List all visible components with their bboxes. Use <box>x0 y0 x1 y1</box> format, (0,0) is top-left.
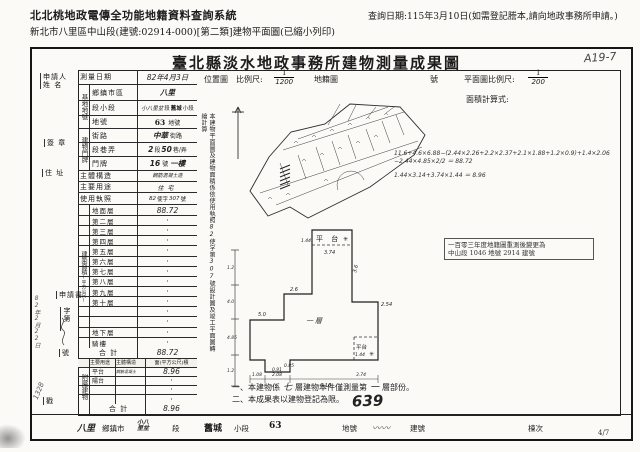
side-note-vertical: 本建物平面圖及建物面積係依使用執照82使字第307號設計圖及竣工平面圖轉繪計算 <box>199 113 215 357</box>
street-label: 街路 <box>90 129 138 142</box>
area-row-label <box>90 317 138 326</box>
table-row-area-5: 第五層· <box>78 246 197 256</box>
section-value: 小八里坌段舊城小段 <box>138 101 197 115</box>
row-street: 街路 中華街路 <box>78 129 197 143</box>
query-date: 查詢日期:115年3月10日(如需登記謄本,請向地政事務所申請。) <box>368 9 618 22</box>
left-upper-dim: 2.6 <box>290 287 298 293</box>
scale-label: 比例尺: <box>236 74 263 85</box>
area-row-label <box>90 307 138 316</box>
area-row-label: 第二層 <box>90 216 138 225</box>
table-row-area-14: 騎樓· <box>78 338 197 348</box>
area-row-label: 第九層 <box>90 287 138 296</box>
top-platform-dim: 1.44 <box>301 238 311 244</box>
area-row-value: · <box>138 297 197 306</box>
lane-hw1: 2 <box>148 145 153 154</box>
bottom-bar-label-6: 棟次 <box>528 423 543 434</box>
lane-print2: 巷/弄 <box>173 145 187 154</box>
handwritten-page-mark: A19-7 <box>584 50 617 65</box>
area-rows: 地面層88.72第二層·第三層·第四層·第五層·第六層·第七層·第八層·第九層·… <box>78 205 197 348</box>
area-row-label: 地下層 <box>90 328 138 337</box>
scan-smudge <box>0 424 26 448</box>
lane-value: 2段50巷/弄 <box>138 143 197 156</box>
bottom-bar-label-4: 地號 <box>342 423 357 434</box>
bottom-location-bar: 八里鄉鎮市小八里坌段舊城小段63地號〰〰建號棟次 <box>32 414 631 440</box>
bottom-dim2: 2.08 <box>272 372 282 378</box>
section-print2: 小段 <box>183 104 194 112</box>
star-mark-top: ✳ <box>343 236 348 243</box>
side-note-hw2: 307 <box>208 258 215 281</box>
plan-left-tick-3: 4.85 <box>227 335 237 341</box>
annex-row-area: · <box>146 395 197 404</box>
plan-scale-label: 平面圖比例尺: <box>464 74 515 85</box>
annex-header-structure: 主體構造 <box>116 359 146 367</box>
row-door-number: 門牌 16號一樓 <box>78 157 197 171</box>
table-row-area-13: 地下層· <box>78 328 197 338</box>
area-row-label: 第五層 <box>90 246 138 255</box>
survey-document-frame: 臺北縣淡水地政事務所建物測量成果圖 A19-7 申請人 姓 名 簽 章 住 址 … <box>30 47 633 441</box>
usage-value: 住宅 <box>138 182 197 192</box>
row-lane: 段巷弄 2段50巷/弄 <box>78 143 197 157</box>
note-1: 一、本建物係七層建物本件僅測量第一層部份。 <box>232 382 414 394</box>
margin-label-applicant: 申請人 姓 名 <box>40 73 67 89</box>
system-title: 北北桃地政電傳全功能地籍資料查詢系統 <box>30 7 237 23</box>
lane-label: 段巷弄 <box>90 143 138 156</box>
area-row-value: · <box>138 328 197 337</box>
area-row-value: · <box>138 317 197 326</box>
area-row-value: · <box>138 226 197 235</box>
table-row-area-9: 第九層· <box>78 287 197 297</box>
margin-label-chop: 戳 <box>43 397 54 405</box>
license-value: 82使字307號 <box>138 193 197 204</box>
scanned-document-page: 北北桃地政電傳全功能地籍資料查詢系統 新北市八里區中山段(建號:02914-00… <box>0 0 640 452</box>
section-stamp: 舊城 <box>171 104 182 112</box>
group-label-area: 建築面積(平方公尺) <box>78 205 90 348</box>
page-number: 4/7 <box>598 429 609 437</box>
section-label: 段小段 <box>90 101 138 115</box>
table-row-area-4: 第四層· <box>78 236 197 246</box>
annex-row-use: 平台 <box>90 368 116 376</box>
resurvey-stamp-line2: 中山段 1046 地號 2914 建號 <box>448 249 590 257</box>
annex-row-area: 8.96 <box>146 368 197 376</box>
floor-label: 一層 <box>306 317 324 325</box>
table-row-area-7: 第七層· <box>78 267 197 277</box>
street-value: 中華街路 <box>138 129 197 142</box>
group-label-door: 建物門牌 <box>78 129 90 171</box>
area-row-label: 第四層 <box>90 236 138 245</box>
table-row-area-6: 第六層· <box>78 257 197 267</box>
area-row-value: · <box>138 246 197 255</box>
bottom-bar-value-4: 63 <box>269 421 282 431</box>
area-row-label: 第六層 <box>90 257 138 266</box>
bottom-bar-value-1: 八里 <box>77 421 95 434</box>
annex-total-label: 合 計 <box>90 404 146 414</box>
resurvey-stamp-line1: 一百零三年度地籍圖重測後變更為 <box>448 241 590 249</box>
area-row-value: · <box>138 236 197 245</box>
license-hw1: 82 <box>149 196 156 202</box>
row-annex-header: 主要用途 主體構造 面(平方公尺)積 <box>78 359 197 368</box>
side-note-hw1: 82 <box>208 224 215 239</box>
cadastre-no-label: 號 <box>430 74 438 85</box>
area-row-label: 第七層 <box>90 267 138 276</box>
structure-label: 主體構造 <box>78 171 138 181</box>
table-row-annex-4: · <box>78 395 197 404</box>
plan-left-tick-2: 4.0 <box>227 299 234 305</box>
left-dim: 5.0 <box>258 312 266 318</box>
annex-row-structure: 鋼筋混凝土 <box>116 368 146 376</box>
license-print1: 使字 <box>157 195 168 203</box>
side-note-print1: 本建物平面圖及建物面積係依使用執照 <box>208 113 215 224</box>
license-print2: 號 <box>181 195 187 203</box>
table-row-area-1: 地面層88.72 <box>78 205 197 216</box>
area-group-chars: 建築面積 <box>80 251 87 275</box>
bottom-bar-value-3: 舊城 <box>204 421 222 434</box>
plan-scale-fraction: 1 200 <box>528 69 548 86</box>
door-hw2: 一樓 <box>170 158 185 169</box>
township-value: 八里 <box>138 85 197 100</box>
annex-rows: 平台鋼筋混凝土8.96陽台··· <box>78 368 197 404</box>
area-unit: (平方公尺) <box>81 275 86 303</box>
application-number-scribble <box>56 315 72 349</box>
row-license: 使用執照 82使字307號 <box>78 193 197 205</box>
door-hw1: 16 <box>150 159 160 168</box>
plan-left-tick-4: 1.2 <box>227 368 234 374</box>
margin-label-seal: 簽 章 <box>44 139 66 147</box>
handwritten-639: 639 <box>352 391 384 410</box>
area-row-value: · <box>138 287 197 296</box>
right-dim: 2.54 <box>381 302 392 308</box>
annex-row-area: · <box>146 386 197 394</box>
row-area-total: 合 計 88.72 <box>78 348 197 359</box>
row-section: 段小段 小八里坌段舊城小段 <box>78 101 197 116</box>
area-row-label: 第三層 <box>90 226 138 235</box>
bottom-bar-label-3: 小段 <box>234 423 249 434</box>
row-structure: 主體構造 鋼筋混凝土造 <box>78 171 197 182</box>
plan-scale-numerator: 1 <box>528 69 548 78</box>
area-row-value: · <box>138 338 197 348</box>
land-number-value: 63地號 <box>138 116 197 128</box>
scale-denominator: 1200 <box>274 78 294 86</box>
annex-row-use <box>90 395 116 404</box>
usage-label: 主要用途 <box>78 182 138 192</box>
land-number-stamp: 63 <box>155 118 165 127</box>
plan-scale-denominator: 200 <box>528 78 548 86</box>
survey-date-label: 測量日期 <box>78 70 138 84</box>
margin-handwriting: 82年2月22日 <box>32 295 41 395</box>
table-row-area-12: · <box>78 317 197 327</box>
top-platform-label: 平 台 <box>316 234 341 243</box>
area-row-label: 騎樓 <box>90 338 138 348</box>
table-row-annex-3: · <box>78 386 197 395</box>
door-number-label: 門牌 <box>90 157 138 170</box>
group-label-annex: 附屬建物 <box>78 359 90 414</box>
note-2: 二、本成果表以建物登記為限。 <box>232 394 414 406</box>
bottom-platform-label: 平台 <box>356 343 368 351</box>
land-number-print: 地號 <box>168 118 180 127</box>
area-row-label: 第十層 <box>90 297 138 306</box>
lane-hw2: 50 <box>161 145 171 154</box>
bottom-bar-value-5: 〰〰 <box>372 421 390 434</box>
margin-label-no: 號 <box>59 349 70 357</box>
area-row-label: 地面層 <box>90 205 138 215</box>
section-print1: 段 <box>164 104 170 112</box>
margin-label-address: 住 址 <box>42 169 64 177</box>
group-label-land: 基地地號 <box>78 85 90 129</box>
annex-row-structure <box>116 395 146 404</box>
area-total-value: 88.72 <box>138 348 197 358</box>
structure-value: 鋼筋混凝土造 <box>138 171 197 181</box>
bottom-dim1: 1.08 <box>252 372 262 378</box>
table-row-area-8: 第八層· <box>78 277 197 287</box>
row-usage: 主要用途 住宅 <box>78 182 197 193</box>
location-scale-fraction: 1 1200 <box>274 69 294 86</box>
top-width-dim: 3.74 <box>324 250 335 256</box>
annex-row-area: · <box>146 377 197 385</box>
right-upper-dim: 3.6 <box>352 264 360 273</box>
survey-date-value: 82年4月3日 <box>138 70 197 84</box>
margin-applicant-line1: 申請人 <box>43 73 67 81</box>
notch-dim1: 0.85 <box>284 363 294 369</box>
annex-total-value: 8.96 <box>146 404 197 414</box>
street-print: 街路 <box>170 131 182 140</box>
side-note-print2: 使字第 <box>208 239 215 259</box>
annex-row-structure <box>116 386 146 394</box>
table-row-area-2: 第二層· <box>78 216 197 226</box>
table-row-area-11: · <box>78 307 197 317</box>
row-township: 鄉鎮市區 八里 <box>78 85 197 101</box>
bottom-bar-label-2: 段 <box>172 423 180 434</box>
query-subtitle: 新北市八里區中山段(建號:02914-000)[第二類]建物平面圖(已縮小列印) <box>30 24 335 38</box>
license-hw2: 307 <box>169 196 180 202</box>
scale-numerator: 1 <box>274 69 294 78</box>
license-label: 使用執照 <box>78 193 138 204</box>
group-label-area-text: 建築面積(平方公尺) <box>80 251 87 303</box>
location-map-label: 位置圖 <box>204 74 228 85</box>
door-print: 號 <box>162 159 168 168</box>
survey-form-table: 基地地號 建物門牌 建築面積(平方公尺) 附屬建物 測量日期 82年4月3日 鄉… <box>78 70 197 414</box>
street-hw: 中華 <box>153 130 168 141</box>
land-number-label: 地號 <box>90 116 138 128</box>
annex-header-use: 主要用途 <box>90 359 116 367</box>
floor-plan-drawing: 平 台 1.44 ✳ 3.74 3.6 2.54 2.6 5.0 一層 平台 1… <box>240 213 468 391</box>
bottom-platform-dim: 1.44 <box>355 352 365 358</box>
row-land-number: 地號 63地號 <box>78 116 197 129</box>
notes: 一、本建物係七層建物本件僅測量第一層部份。 二、本成果表以建物登記為限。 <box>232 382 414 406</box>
area-row-value: · <box>138 267 197 276</box>
plan-left-tick-1: 1.2 <box>227 265 234 271</box>
bottom-bar-value-2: 小八里坌 <box>137 420 149 432</box>
area-row-value: · <box>138 216 197 225</box>
row-annex-total: 合 計 8.96 <box>78 404 197 414</box>
area-row-label: 第八層 <box>90 277 138 286</box>
margin-applicant-line2: 姓 名 <box>43 81 67 89</box>
annex-row-structure <box>116 377 146 385</box>
note1-print1: 一、本建物係 <box>232 383 280 392</box>
area-total-label: 合 計 <box>78 348 138 358</box>
table-row-area-3: 第三層· <box>78 226 197 236</box>
row-survey-date: 測量日期 82年4月3日 <box>78 70 197 85</box>
area-row-value: · <box>138 257 197 266</box>
note1-print2: 層建物本件僅測量第 <box>295 383 367 392</box>
door-number-value: 16號一樓 <box>138 157 197 170</box>
township-label: 鄉鎮市區 <box>90 85 138 100</box>
area-row-value: · <box>138 277 197 286</box>
annex-header-area: 面(平方公尺)積 <box>146 359 197 367</box>
note1-hw1: 七 <box>280 383 295 393</box>
bottom-bar-label-5: 建號 <box>410 423 425 434</box>
calc-label: 面積計算式: <box>466 94 509 105</box>
annex-row-use <box>90 386 116 394</box>
section-hw: 小八里坌 <box>141 104 163 112</box>
lane-print1: 段 <box>154 145 160 154</box>
star-mark-bottom: ✳ <box>369 351 374 358</box>
location-sketch <box>228 95 446 227</box>
table-row-area-10: 第十層· <box>78 297 197 307</box>
table-row-annex-2: 陽台· <box>78 377 197 386</box>
bottom-dim4: 3.74 <box>356 372 366 378</box>
cadastre-label: 地籍圖 <box>314 74 338 85</box>
area-row-value: 88.72 <box>138 205 197 215</box>
table-row-annex-1: 平台鋼筋混凝土8.96 <box>78 368 197 377</box>
annex-row-use: 陽台 <box>90 377 116 385</box>
note1-print3: 層部份。 <box>382 383 414 392</box>
bottom-bar-label-1: 鄉鎮市 <box>102 423 125 434</box>
area-row-value: · <box>138 307 197 316</box>
